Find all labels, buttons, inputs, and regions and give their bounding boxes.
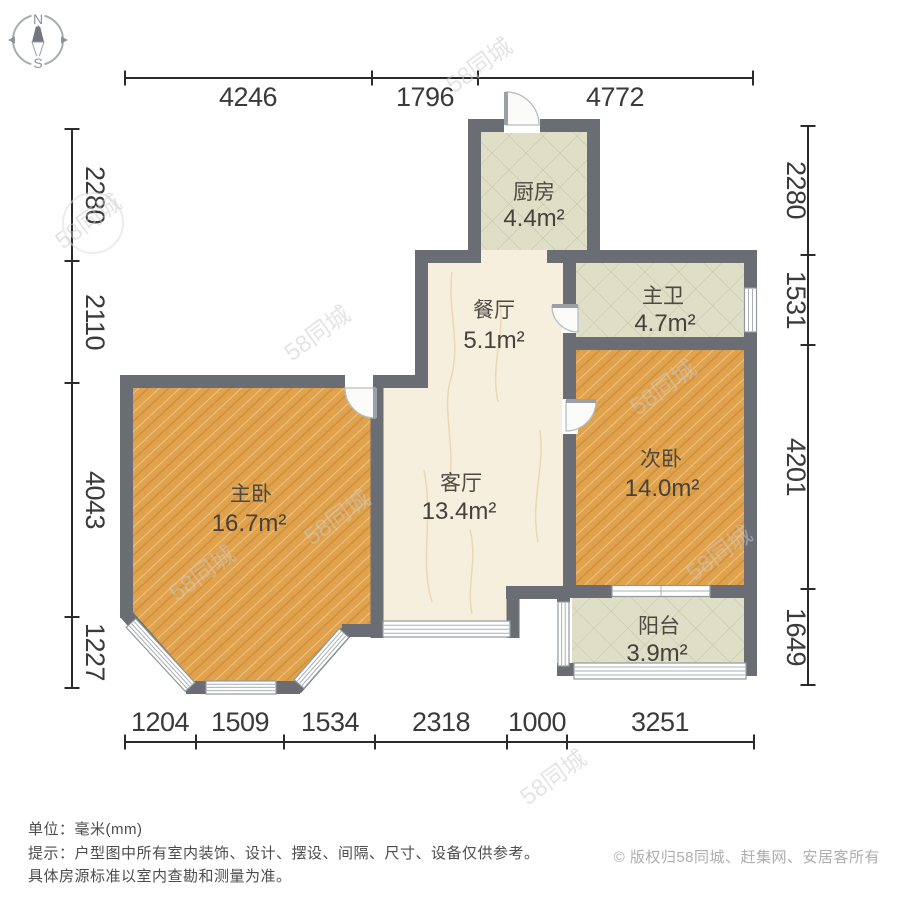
dining-area: 5.1m²: [463, 327, 524, 354]
living-label: 客厅: [440, 472, 482, 495]
living-area: 13.4m²: [422, 498, 497, 525]
dim-bottom-5: 1000: [508, 707, 566, 737]
living-room-window: [383, 621, 510, 637]
master-bedroom-door-opening: [345, 374, 373, 389]
floorplan-page: 厨房 4.4m² 餐厅 5.1m² 主卫 4.7m² 客厅 13.4m² 主卧 …: [0, 0, 900, 900]
footer-tip-line2: 具体房源标准以室内查勘和测量为准。: [28, 865, 292, 886]
dim-left-4: 1227: [80, 623, 110, 681]
dim-bottom-1: 1204: [131, 707, 190, 737]
footer-copyright: © 版权归58同城、赶集网、安居客所有: [614, 846, 880, 867]
floor-plan-canvas: 厨房 4.4m² 餐厅 5.1m² 主卫 4.7m² 客厅 13.4m² 主卧 …: [0, 0, 900, 900]
second-bedroom-area: 14.0m²: [625, 475, 700, 502]
master-bath-window: [745, 288, 757, 332]
master-bath-area: 4.7m²: [634, 310, 695, 337]
dim-top-3: 4772: [586, 82, 644, 112]
watermark-text: 58同城: [515, 745, 591, 811]
balcony-area: 3.9m²: [626, 640, 687, 667]
compass-south-label: S: [33, 55, 42, 71]
bay-window-bottom: [206, 681, 276, 694]
dim-top-1: 4246: [219, 82, 277, 112]
dim-right-4: 1649: [781, 608, 811, 666]
compass-icon: N S: [8, 11, 68, 71]
balcony-label: 阳台: [638, 615, 680, 638]
dim-bottom-2: 1509: [211, 707, 269, 737]
bedroom-balcony-slider: [612, 586, 710, 597]
dim-bottom-3: 1534: [301, 707, 360, 737]
dim-top-2: 1796: [396, 82, 454, 112]
dim-bottom-4: 2318: [412, 707, 470, 737]
dining-label: 餐厅: [473, 299, 515, 322]
dim-right-2: 1531: [781, 271, 811, 329]
master-bedroom-area: 16.7m²: [212, 510, 287, 537]
dim-bottom-6: 3251: [631, 707, 689, 737]
compass-north-label: N: [33, 11, 43, 27]
footer-tip-line1: 提示：户型图中所有室内装饰、设计、摆设、间隔、尺寸、设备仅供参考。: [28, 842, 540, 863]
balcony-left-window: [558, 602, 569, 666]
compass-west-tick: [8, 37, 15, 44]
footer-unit: 单位：毫米(mm): [28, 818, 142, 839]
second-bedroom-label: 次卧: [640, 448, 682, 471]
kitchen-door: [506, 92, 539, 125]
kitchen-label: 厨房: [513, 181, 555, 204]
watermark-text: 58同城: [279, 301, 355, 367]
watermark-text: 58同城: [441, 33, 517, 99]
dim-right-1: 2280: [781, 161, 811, 219]
dim-left-2: 2110: [80, 294, 110, 350]
compass-east-tick: [61, 37, 68, 44]
dim-right-3: 4201: [781, 438, 811, 496]
dim-left-3: 4043: [80, 471, 110, 529]
kitchen-area: 4.4m²: [503, 205, 564, 232]
master-bath-label: 主卫: [642, 285, 684, 308]
master-bedroom-label: 主卧: [230, 483, 272, 506]
